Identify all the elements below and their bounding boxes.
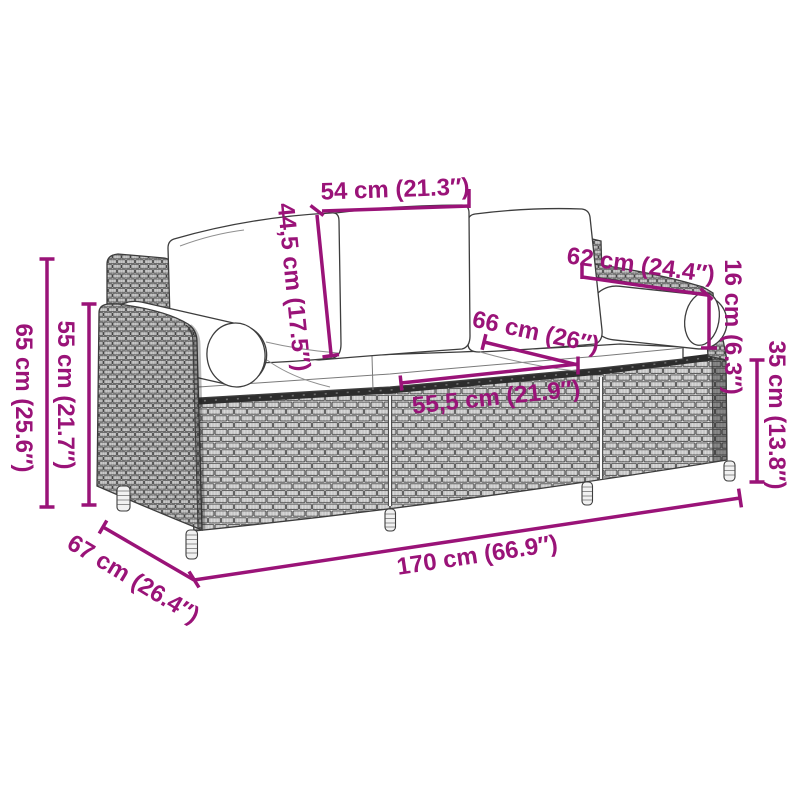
svg-text:65 cm (25.6″): 65 cm (25.6″) [10,324,37,473]
svg-text:54 cm (21.3″): 54 cm (21.3″) [320,173,470,205]
svg-text:35 cm (13.8″): 35 cm (13.8″) [763,341,790,490]
svg-text:16 cm (6.3″): 16 cm (6.3″) [719,259,746,395]
svg-text:55 cm (21.7″): 55 cm (21.7″) [52,321,79,470]
